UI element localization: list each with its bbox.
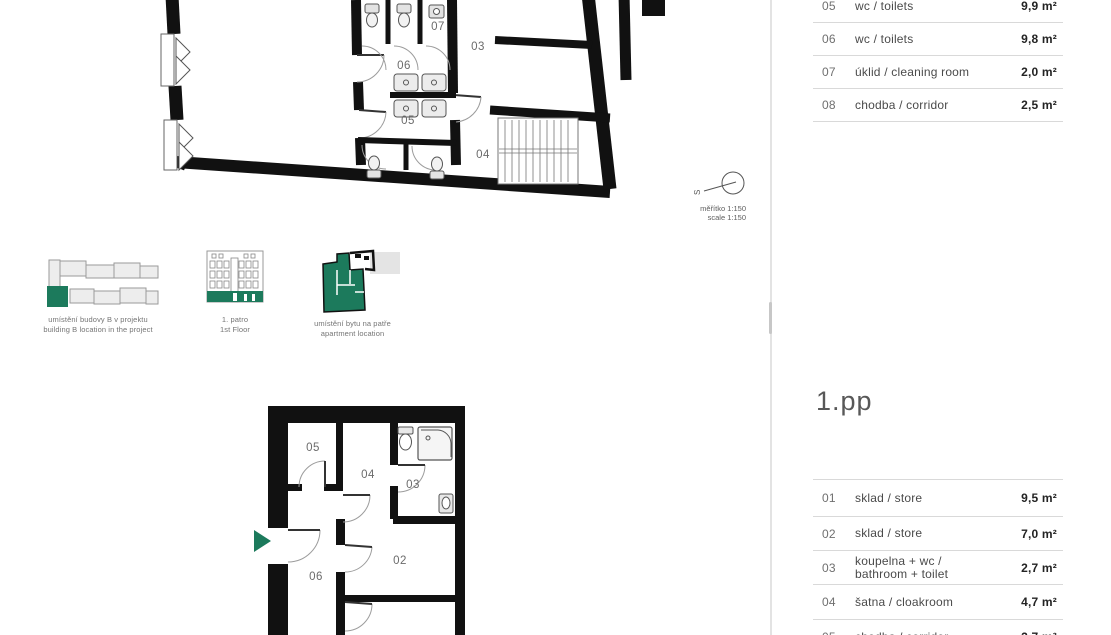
row-number: 06 (813, 32, 855, 46)
room-label: 06 (309, 571, 323, 583)
thumbnail-site-plan (36, 258, 161, 310)
table-row: 02 sklad / store 7,0 m² (813, 516, 1063, 550)
table-row: 07 úklid / cleaning room 2,0 m² (813, 56, 1063, 89)
room-label: 02 (393, 555, 407, 567)
table-row: 04 šatna / cloakroom 4,7 m² (813, 584, 1063, 619)
caption-en: 1st Floor (187, 325, 283, 335)
row-name: šatna / cloakroom (855, 596, 993, 609)
highlighted-building (47, 286, 68, 307)
thumbnail-caption: umístění bytu na patře apartment locatio… (295, 319, 410, 338)
caption-en: building B location in the project (18, 325, 178, 335)
row-name: koupelna + wc / bathroom + toilet (855, 555, 993, 581)
row-area: 9,5 m² (993, 491, 1063, 505)
row-name: chodba / corridor (855, 631, 993, 635)
row-number: 01 (813, 491, 855, 505)
row-area: 2,0 m² (993, 65, 1063, 79)
scale-line-cz: měřítko 1:150 (656, 204, 746, 213)
room-label: 06 (397, 60, 411, 72)
brochure-page: 07 03 06 05 04 S měřítko 1:150 scale 1:1… (0, 0, 1111, 635)
room-label: 03 (406, 479, 420, 491)
room-table-upper: 05 wc / toilets 9,9 m² 06 wc / toilets 9… (813, 0, 1063, 122)
scale-line-en: scale 1:150 (656, 213, 746, 222)
entrance-arrow-icon (254, 530, 271, 552)
row-number: 05 (813, 0, 855, 13)
page-divider-shadow (769, 302, 772, 334)
row-number: 02 (813, 527, 855, 541)
table-row: 05 chodba / corridor 2,7 m² (813, 619, 1063, 635)
room-label: 04 (361, 469, 375, 481)
table-row: 01 sklad / store 9,5 m² (813, 479, 1063, 516)
highlighted-apartment (323, 253, 365, 312)
floor-plan-upper (160, 0, 665, 205)
shower-icon (418, 427, 452, 460)
compass-icon: S (690, 165, 760, 205)
room-table-lower: 01 sklad / store 9,5 m² 02 sklad / store… (813, 479, 1063, 635)
table-row: 03 koupelna + wc / bathroom + toilet 2,7… (813, 550, 1063, 584)
thumbnail-caption: 1. patro 1st Floor (187, 315, 283, 334)
caption-cz: umístění bytu na patře (295, 319, 410, 329)
row-number: 04 (813, 595, 855, 609)
caption-cz: 1. patro (187, 315, 283, 325)
row-area: 2,7 m² (993, 630, 1063, 635)
thumbnail-elevation (206, 250, 264, 312)
row-number: 03 (813, 561, 855, 575)
floor-plan-lower (250, 398, 480, 635)
row-name: sklad / store (855, 492, 993, 505)
table-row: 06 wc / toilets 9,8 m² (813, 23, 1063, 56)
row-area: 7,0 m² (993, 527, 1063, 541)
scale-text: měřítko 1:150 scale 1:150 (656, 204, 746, 222)
row-name: úklid / cleaning room (855, 66, 993, 79)
caption-en: apartment location (295, 329, 410, 339)
thumbnail-apartment-location (315, 240, 403, 320)
room-label: 07 (431, 21, 445, 33)
thumbnail-caption: umístění budovy B v projektu building B … (18, 315, 178, 334)
row-area: 4,7 m² (993, 595, 1063, 609)
caption-cz: umístění budovy B v projektu (18, 315, 178, 325)
table-row: 08 chodba / corridor 2,5 m² (813, 89, 1063, 122)
row-area: 9,9 m² (993, 0, 1063, 13)
row-number: 07 (813, 65, 855, 79)
row-number: 08 (813, 98, 855, 112)
room-label: 05 (306, 442, 320, 454)
row-name: wc / toilets (855, 0, 993, 13)
compass-label: S (693, 190, 702, 195)
table-row: 05 wc / toilets 9,9 m² (813, 0, 1063, 23)
toilet-icon (398, 427, 413, 450)
room-label: 03 (471, 41, 485, 53)
row-name: wc / toilets (855, 33, 993, 46)
row-name: sklad / store (855, 527, 993, 540)
row-number: 05 (813, 630, 855, 635)
staircase (498, 118, 578, 184)
row-area: 2,7 m² (993, 561, 1063, 575)
row-area: 2,5 m² (993, 98, 1063, 112)
room-label: 04 (476, 149, 490, 161)
row-name: chodba / corridor (855, 99, 993, 112)
room-label: 05 (401, 115, 415, 127)
row-area: 9,8 m² (993, 32, 1063, 46)
floor-heading: 1.pp (816, 386, 873, 417)
sink-icon (439, 494, 453, 513)
